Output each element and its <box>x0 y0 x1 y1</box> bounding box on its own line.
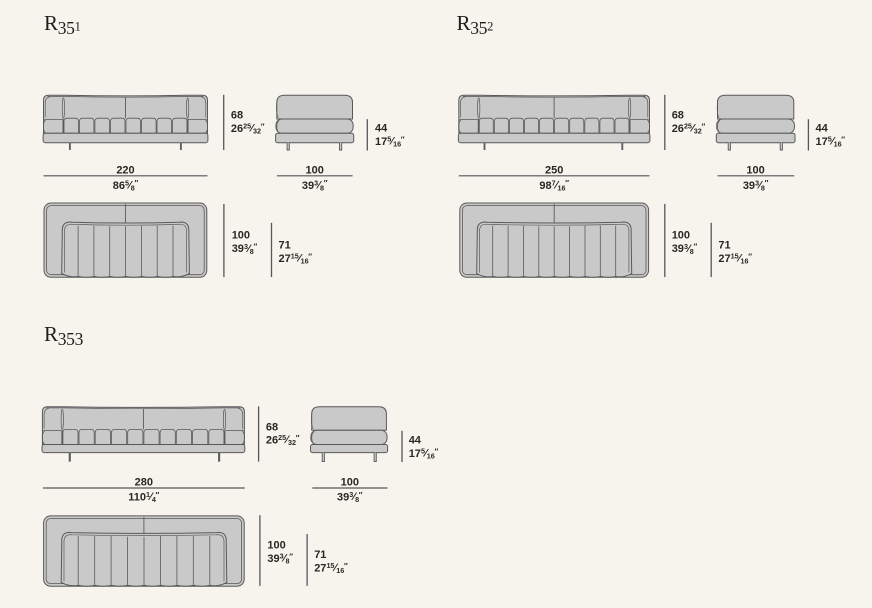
svg-text:100: 100 <box>267 540 285 552</box>
svg-text:220: 220 <box>116 165 134 177</box>
svg-text:1101⁄4″: 1101⁄4″ <box>128 490 159 504</box>
svg-text:71: 71 <box>718 239 730 251</box>
svg-text:100: 100 <box>672 230 690 242</box>
svg-text:44: 44 <box>816 123 829 135</box>
svg-text:68: 68 <box>231 110 243 122</box>
svg-text:100: 100 <box>746 165 764 177</box>
svg-text:68: 68 <box>672 110 684 122</box>
svg-text:100: 100 <box>232 230 250 242</box>
svg-text:71: 71 <box>314 549 326 561</box>
svg-text:68: 68 <box>266 421 278 433</box>
svg-text:44: 44 <box>409 435 422 447</box>
svg-text:100: 100 <box>306 165 324 177</box>
svg-text:100: 100 <box>341 476 359 488</box>
svg-text:250: 250 <box>545 165 563 177</box>
svg-text:71: 71 <box>279 239 291 251</box>
svg-text:280: 280 <box>135 476 153 488</box>
svg-text:44: 44 <box>375 123 388 135</box>
